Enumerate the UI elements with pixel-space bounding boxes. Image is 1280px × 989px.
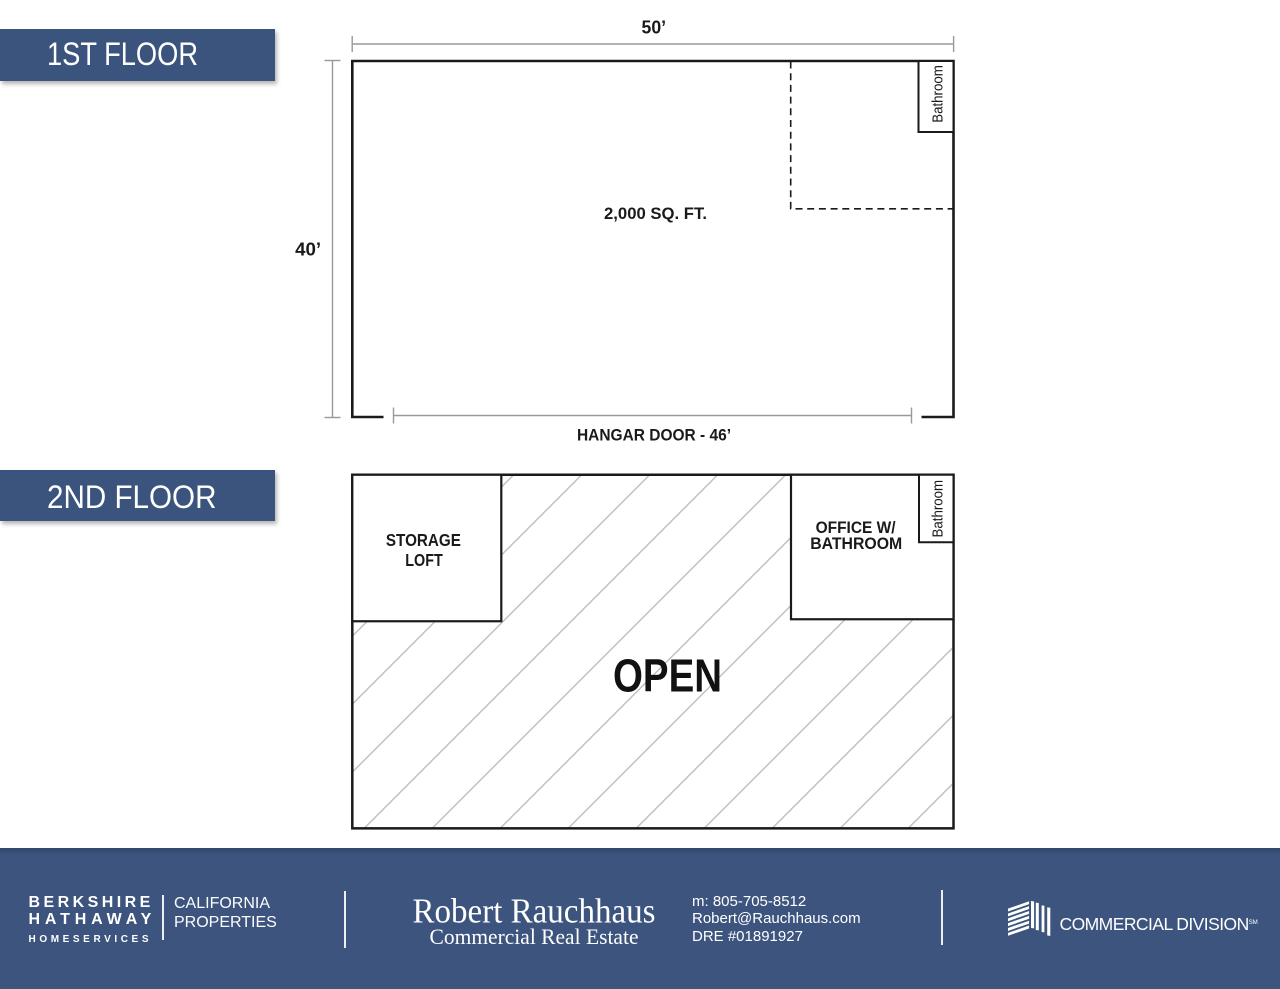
svg-text:STORAGE: STORAGE [386,530,461,550]
svg-text:LOFT: LOFT [405,550,443,570]
svg-text:2,000 SQ. FT.: 2,000 SQ. FT. [604,204,707,223]
svg-text:Bathroom: Bathroom [931,480,947,538]
svg-text:OFFICE W/: OFFICE W/ [816,519,896,537]
svg-text:HANGAR DOOR - 46’: HANGAR DOOR - 46’ [577,426,731,445]
svg-text:Commercial Real Estate: Commercial Real Estate [430,924,639,949]
svg-text:40’: 40’ [295,239,321,259]
svg-text:50’: 50’ [642,17,667,37]
svg-text:Bathroom: Bathroom [931,65,947,123]
svg-text:BATHROOM: BATHROOM [810,535,902,553]
svg-text:OPEN: OPEN [613,650,722,702]
